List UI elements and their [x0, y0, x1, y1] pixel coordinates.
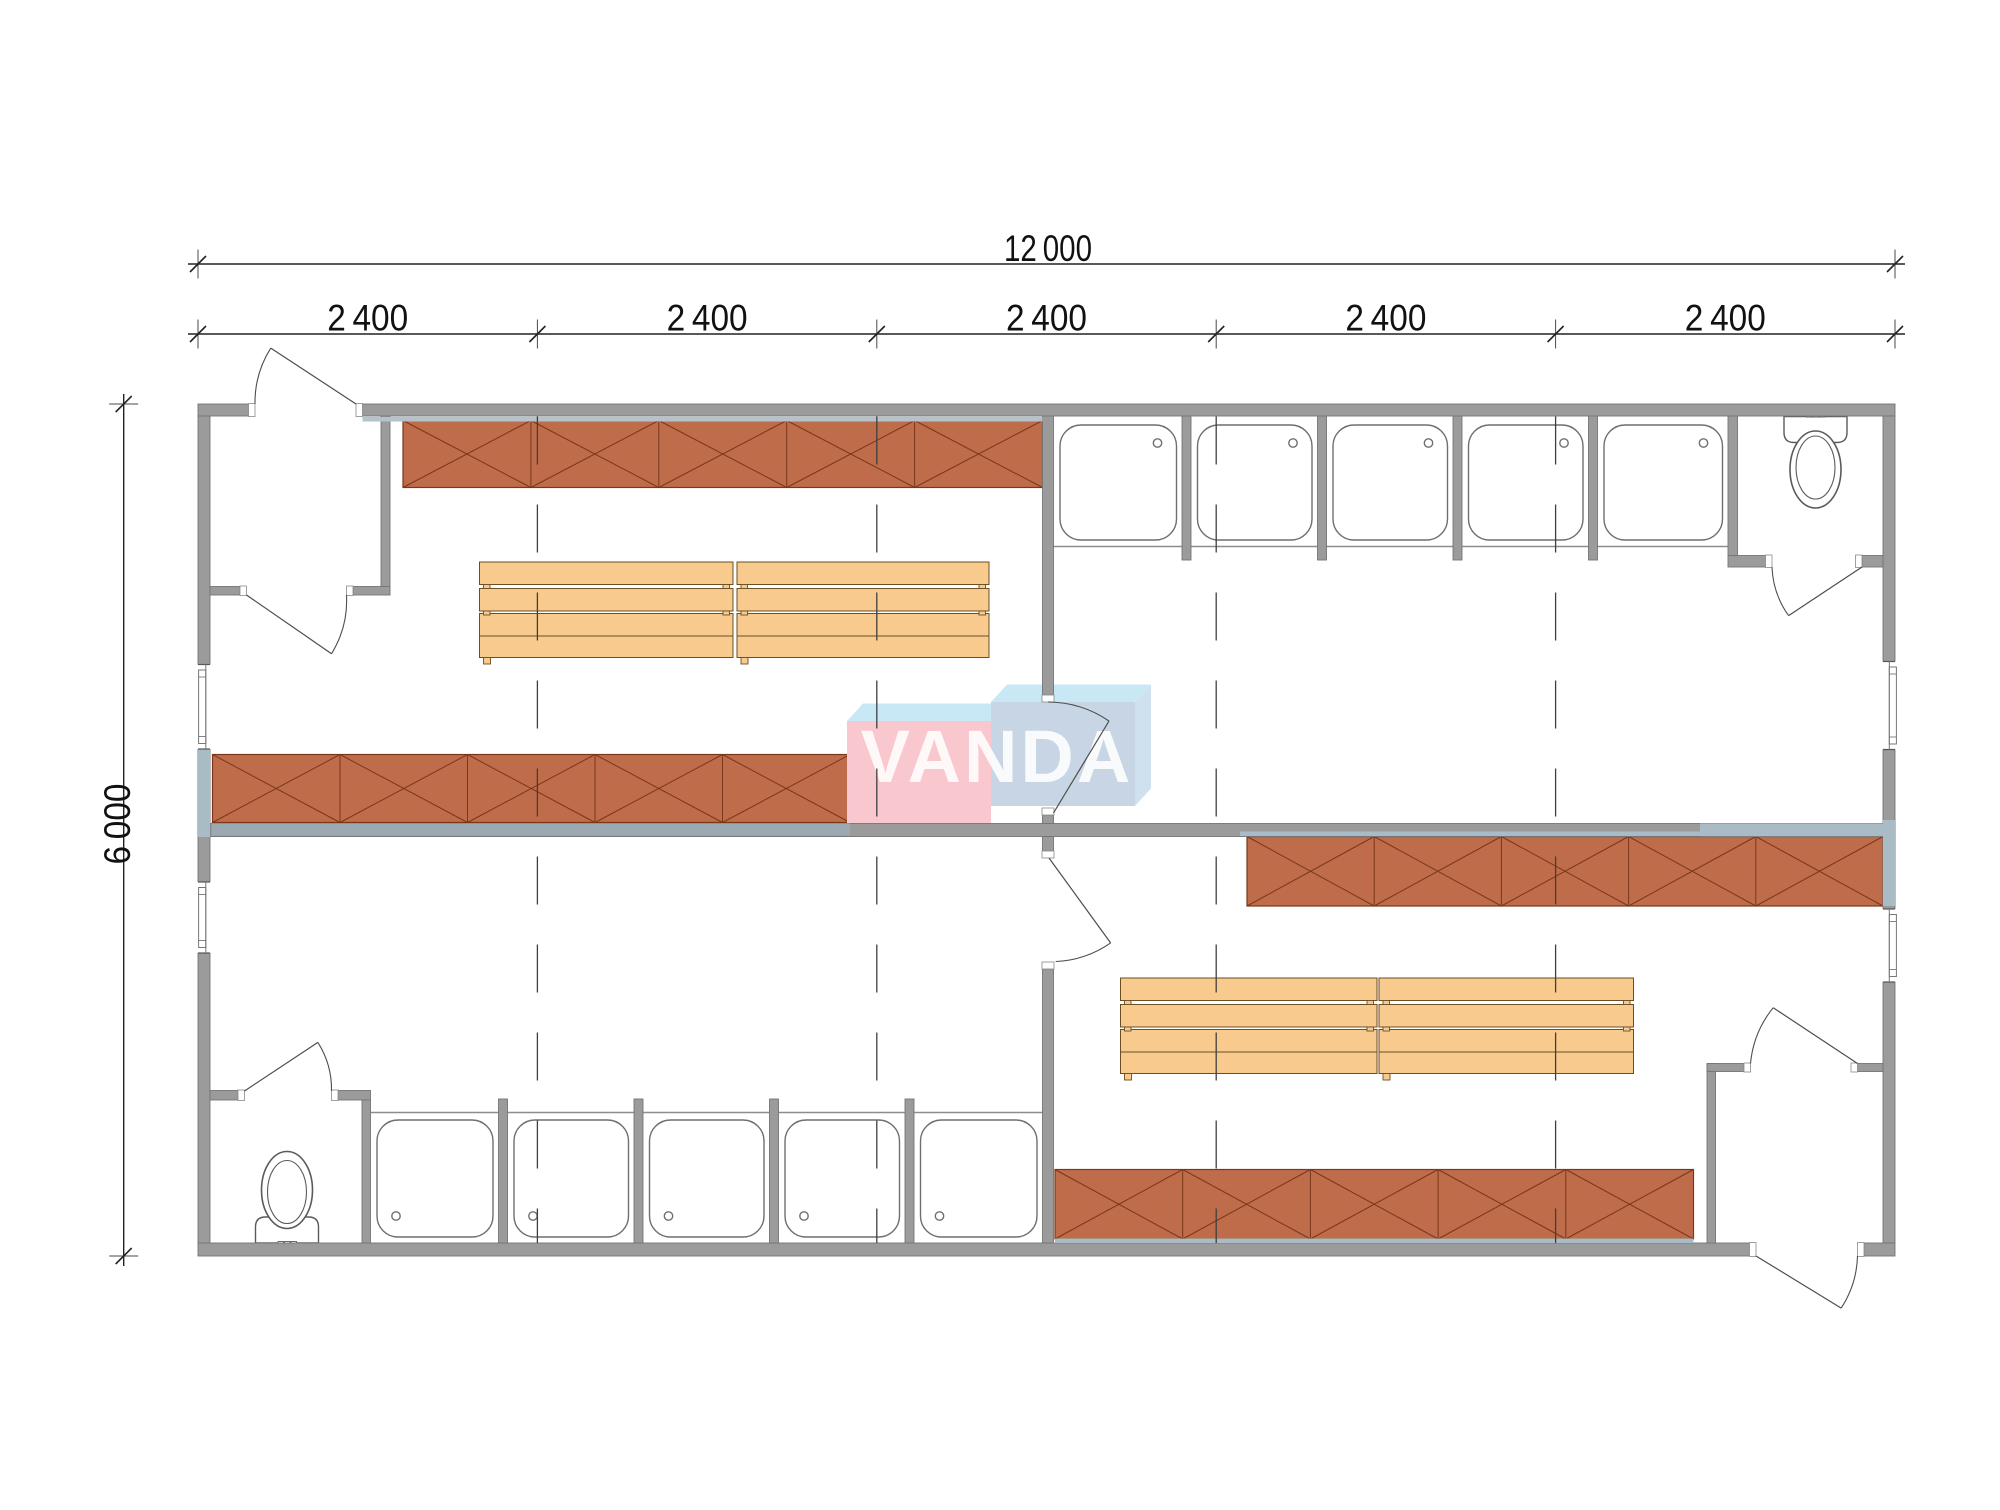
svg-text:12 000: 12 000 — [1004, 228, 1092, 269]
svg-text:2 400: 2 400 — [1006, 298, 1087, 339]
svg-text:6 000: 6 000 — [97, 784, 138, 865]
svg-text:2 400: 2 400 — [1685, 298, 1766, 339]
svg-text:2 400: 2 400 — [1345, 298, 1426, 339]
svg-text:2 400: 2 400 — [327, 298, 408, 339]
svg-text:VANDA: VANDA — [861, 715, 1134, 798]
svg-text:2 400: 2 400 — [667, 298, 748, 339]
